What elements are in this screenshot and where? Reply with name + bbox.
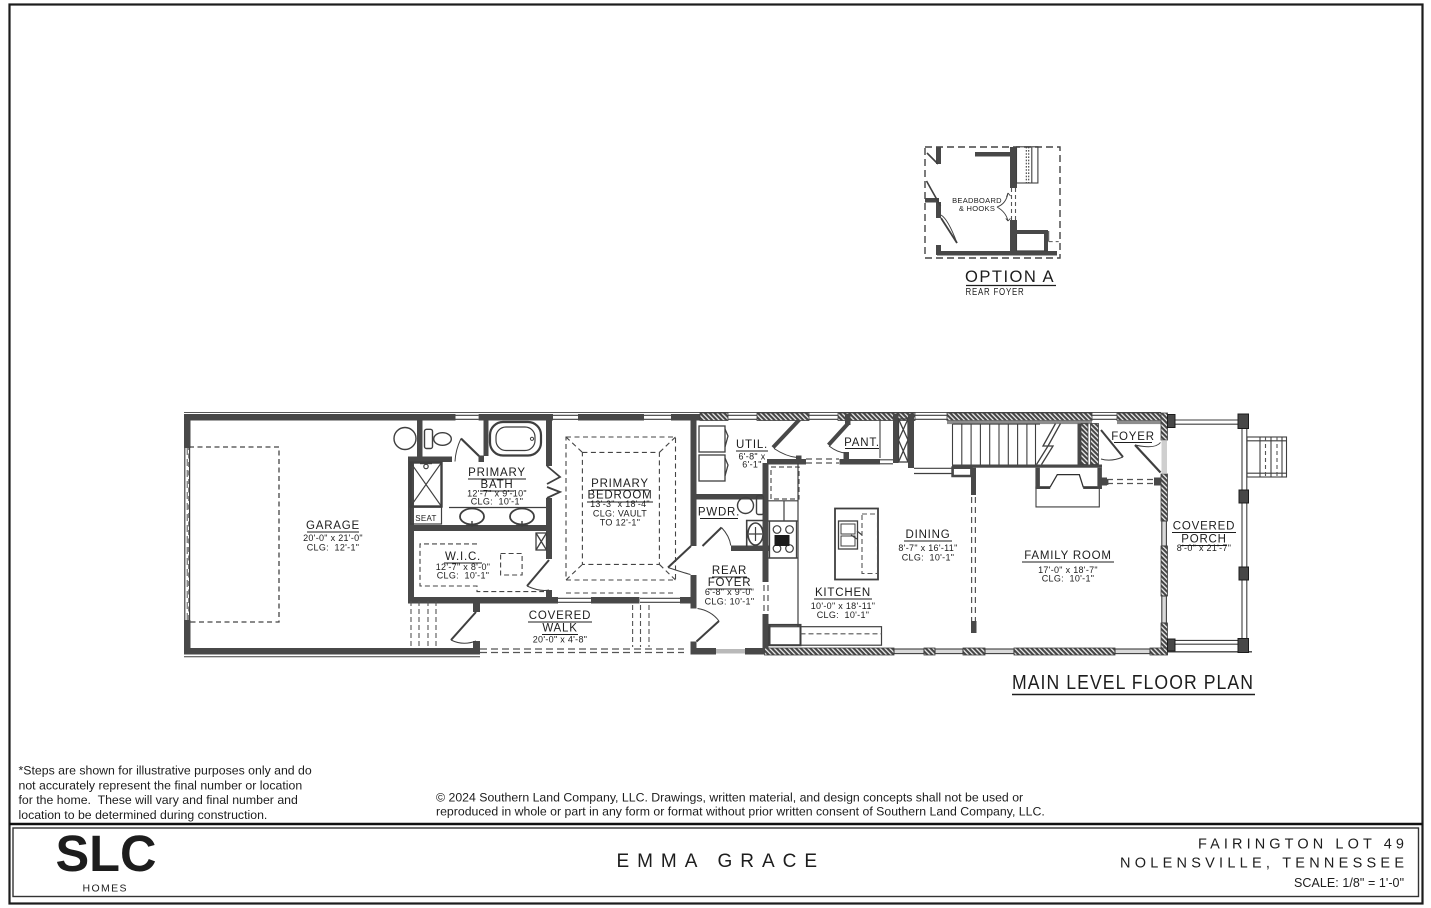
svg-text:FAMILY ROOM: FAMILY ROOM bbox=[1024, 550, 1112, 562]
svg-text:CLG: 10'-1": CLG: 10'-1" bbox=[902, 553, 955, 563]
svg-text:6'-8" x 9'-0": 6'-8" x 9'-0" bbox=[705, 587, 754, 597]
svg-text:HOMES: HOMES bbox=[83, 883, 130, 895]
svg-text:UTIL.: UTIL. bbox=[736, 439, 768, 451]
svg-text:WALK: WALK bbox=[542, 623, 577, 635]
svg-text:13'-3" x 18'-4": 13'-3" x 18'-4" bbox=[590, 499, 650, 509]
svg-text:8'-0" x 21'-7": 8'-0" x 21'-7" bbox=[1177, 543, 1232, 553]
svg-text:FAIRINGTON LOT 49: FAIRINGTON LOT 49 bbox=[1198, 837, 1409, 853]
svg-text:*Steps are shown for illustrat: *Steps are shown for illustrative purpos… bbox=[19, 764, 312, 778]
svg-text:REAR: REAR bbox=[712, 565, 747, 577]
svg-text:MAIN LEVEL FLOOR PLAN: MAIN LEVEL FLOOR PLAN bbox=[1012, 672, 1254, 694]
svg-text:NOLENSVILLE, TENNESSEE: NOLENSVILLE, TENNESSEE bbox=[1120, 856, 1409, 872]
svg-text:EMMA GRACE: EMMA GRACE bbox=[617, 851, 825, 872]
svg-text:not accurately represent the f: not accurately represent the final numbe… bbox=[19, 778, 303, 792]
svg-text:location to be determined duri: location to be determined during constru… bbox=[19, 808, 268, 822]
svg-text:20'-0" x 4'-8": 20'-0" x 4'-8" bbox=[533, 635, 588, 645]
svg-text:& HOOKS: & HOOKS bbox=[959, 204, 995, 213]
svg-text:PWDR.: PWDR. bbox=[698, 507, 740, 519]
svg-text:CLG: 10'-1": CLG: 10'-1" bbox=[437, 571, 490, 581]
svg-text:6'-1": 6'-1" bbox=[742, 460, 761, 470]
svg-text:DINING: DINING bbox=[905, 529, 950, 541]
svg-text:PRIMARY: PRIMARY bbox=[591, 478, 649, 490]
svg-text:KITCHEN: KITCHEN bbox=[815, 587, 871, 599]
svg-text:GARAGE: GARAGE bbox=[306, 520, 360, 532]
svg-text:PANT.: PANT. bbox=[844, 437, 880, 449]
svg-text:OPTION A: OPTION A bbox=[965, 267, 1055, 286]
svg-text:8'-7" x 16'-11": 8'-7" x 16'-11" bbox=[898, 543, 957, 553]
svg-text:SLC: SLC bbox=[56, 825, 157, 882]
svg-text:reproduced in whole or part in: reproduced in whole or part in any form … bbox=[436, 805, 1045, 819]
svg-text:© 2024 Southern Land Company,: © 2024 Southern Land Company, LLC. Drawi… bbox=[436, 790, 1023, 804]
svg-text:REAR FOYER: REAR FOYER bbox=[966, 287, 1025, 298]
svg-text:CLG: 12'-1": CLG: 12'-1" bbox=[307, 543, 360, 553]
svg-text:TO 12'-1": TO 12'-1" bbox=[600, 518, 640, 528]
svg-text:CLG: 10'-1": CLG: 10'-1" bbox=[705, 597, 755, 607]
svg-text:20'-0" x 21'-0": 20'-0" x 21'-0" bbox=[303, 533, 363, 543]
svg-text:PRIMARY: PRIMARY bbox=[468, 467, 526, 479]
svg-text:SCALE: 1/8" = 1'-0": SCALE: 1/8" = 1'-0" bbox=[1294, 876, 1404, 890]
svg-text:for the home. These will vary: for the home. These will vary and final … bbox=[19, 793, 298, 807]
svg-text:SEAT: SEAT bbox=[415, 514, 437, 523]
svg-text:FOYER: FOYER bbox=[1111, 431, 1155, 443]
svg-text:COVERED: COVERED bbox=[529, 610, 591, 622]
svg-text:COVERED: COVERED bbox=[1173, 521, 1235, 533]
svg-text:CLG: 10'-1": CLG: 10'-1" bbox=[471, 497, 524, 507]
svg-text:CLG: 10'-1": CLG: 10'-1" bbox=[1042, 574, 1095, 584]
svg-text:CLG: 10'-1": CLG: 10'-1" bbox=[817, 610, 870, 620]
